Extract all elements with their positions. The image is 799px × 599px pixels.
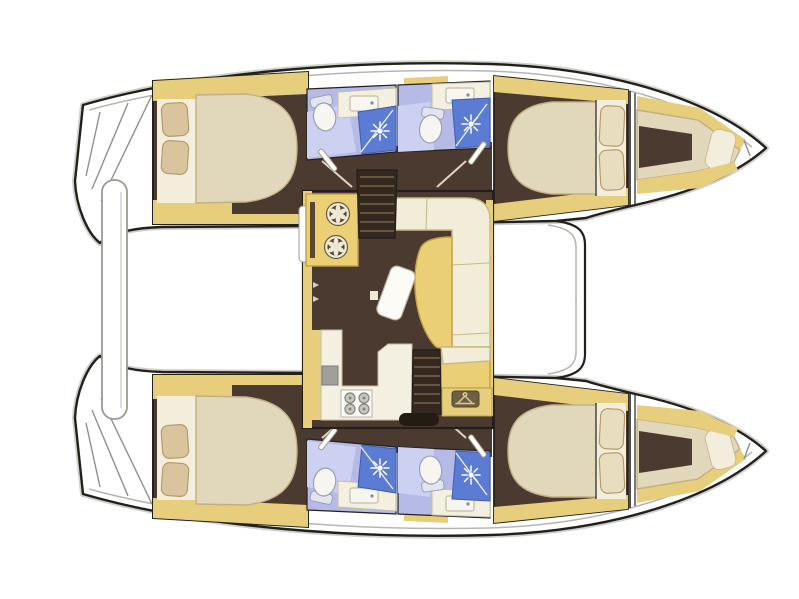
floorplan-canvas <box>0 0 799 599</box>
stove-icon <box>341 390 372 417</box>
fan-icon <box>325 236 348 259</box>
hanging-locker <box>442 388 492 416</box>
saloon-cabinet <box>306 194 358 266</box>
saloon <box>299 170 493 428</box>
galley-trim <box>312 330 321 420</box>
cockpit-bench <box>102 180 127 419</box>
fan-icon <box>327 203 350 226</box>
table-leg <box>370 291 378 300</box>
galley-sink-icon <box>322 366 338 385</box>
catamaran-floorplan <box>0 0 799 599</box>
chaise-seat <box>441 347 490 388</box>
cabinet-handle <box>310 202 315 258</box>
stair-landing <box>399 413 439 426</box>
stairs-to-port-hull <box>357 170 397 238</box>
